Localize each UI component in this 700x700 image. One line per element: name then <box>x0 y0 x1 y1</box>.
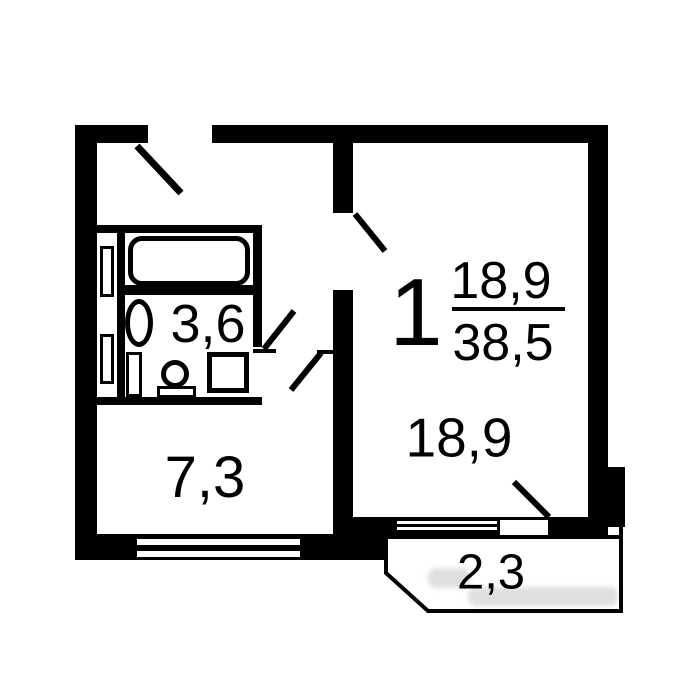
kitchen-door-swing <box>291 353 321 390</box>
living-room-area-label: 18,9 <box>405 411 512 466</box>
entrance-door-swing <box>137 146 181 193</box>
area-fraction-numerator: 18,9 <box>450 255 551 307</box>
area-fraction-bar <box>452 307 565 311</box>
kitchen-area-label: 7,3 <box>165 449 246 507</box>
living-room-door-swing <box>355 214 385 251</box>
area-fraction-denominator: 38,5 <box>452 317 553 369</box>
floor-plan-canvas: 1 18,9 38,5 18,9 7,3 3,6 2,3 <box>0 0 700 700</box>
bathroom-door-swing <box>264 311 294 349</box>
balcony-door-swing <box>514 482 549 517</box>
bathroom-area-label: 3,6 <box>170 297 245 351</box>
room-number-label: 1 <box>389 265 442 361</box>
balcony-area-label: 2,3 <box>457 549 525 598</box>
